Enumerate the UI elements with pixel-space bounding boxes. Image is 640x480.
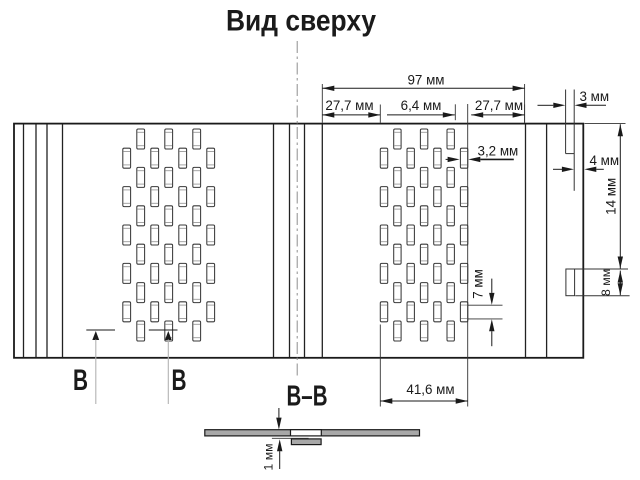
svg-text:14 мм: 14 мм [604,178,619,215]
svg-text:4 мм: 4 мм [590,153,620,168]
svg-text:8 мм: 8 мм [599,269,613,296]
svg-text:7 мм: 7 мм [471,269,486,299]
svg-text:Вид сверху: Вид сверху [226,5,377,38]
svg-text:В–В: В–В [287,381,328,413]
svg-text:3 мм: 3 мм [580,89,610,104]
svg-text:В: В [172,364,187,397]
svg-text:27,7 мм: 27,7 мм [325,98,373,113]
svg-text:97 мм: 97 мм [407,73,444,88]
svg-text:41,6 мм: 41,6 мм [406,382,454,397]
svg-text:6,4 мм: 6,4 мм [401,98,442,113]
svg-text:3,2 мм: 3,2 мм [478,144,519,159]
svg-text:В: В [73,364,88,397]
svg-text:27,7 мм: 27,7 мм [475,98,523,113]
svg-text:1 мм: 1 мм [262,444,276,471]
